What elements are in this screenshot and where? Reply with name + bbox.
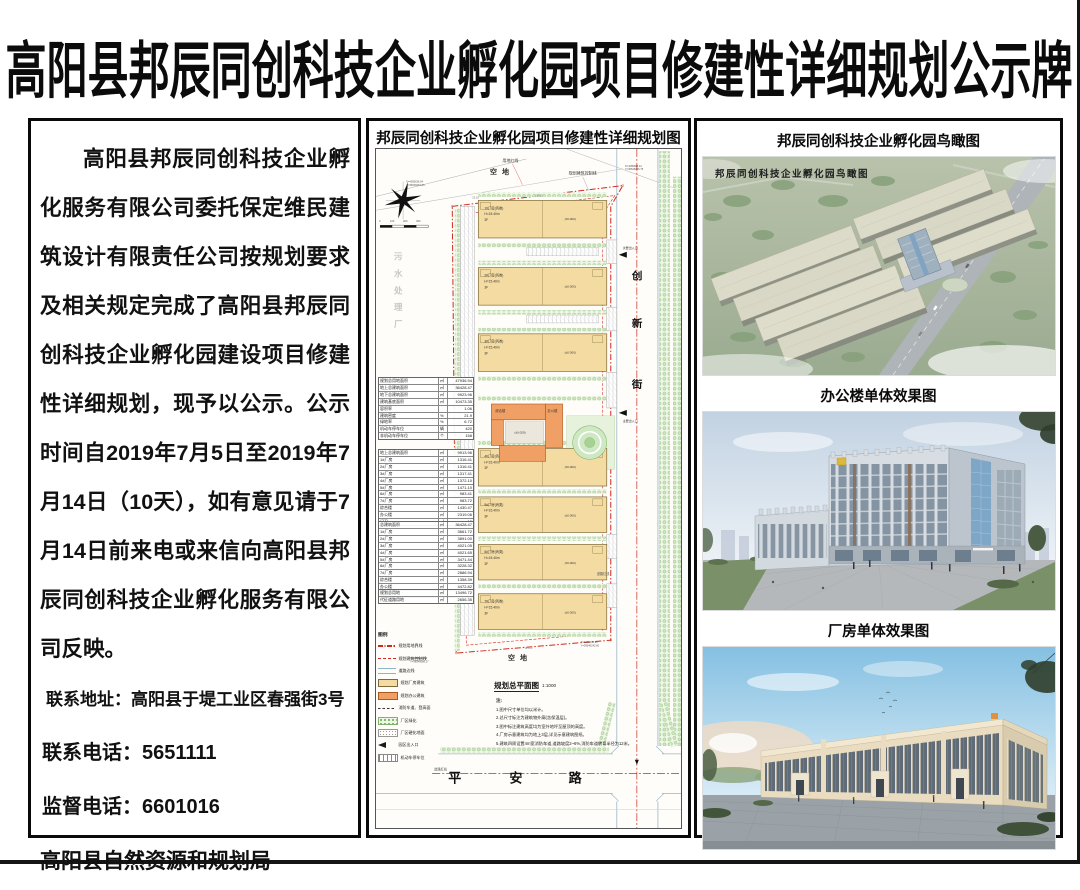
svg-text:6#厂房(丙类): 6#厂房(丙类) [484, 549, 503, 554]
legend-item: 厂区绿化 [378, 714, 438, 726]
svg-text:(±0.000): (±0.000) [514, 431, 525, 435]
svg-text:(±0.000): (±0.000) [565, 217, 576, 221]
aerial-render-title: 邦辰同创科技企业孵化园鸟瞰图 [697, 130, 1060, 151]
svg-text:(±0.000): (±0.000) [565, 611, 576, 615]
svg-text:次要出入口: 次要出入口 [623, 245, 638, 250]
map-legend: 图例 规划用地界线 规划建筑控制线 道路边线 规划厂房建筑 规划办公建筑 消防车… [378, 631, 438, 764]
svg-text:H=15.40m: H=15.40m [484, 346, 500, 350]
svg-text:Y=39546236.75: Y=39546236.75 [625, 167, 644, 171]
svg-text:H=15.40m: H=15.40m [484, 509, 500, 513]
notice-text-panel: 高阳县邦辰同创科技企业孵化服务有限公司委托保定维民建筑设计有限责任公司按规划要求… [28, 118, 361, 838]
svg-text:128.00: 128.00 [535, 193, 544, 197]
office-base [829, 546, 1025, 564]
legend-swatch-entrance-icon [378, 742, 386, 748]
svg-text:综合楼: 综合楼 [495, 408, 506, 413]
office-render-title: 办公楼单体效果图 [697, 385, 1060, 406]
svg-text:(±0.000): (±0.000) [565, 514, 576, 518]
factory-logo [991, 713, 998, 719]
svg-text:(±0.000): (±0.000) [565, 465, 576, 469]
plan-caption: 规划总平面图1:1000 [494, 675, 556, 693]
page-title-text: 高阳县邦辰同创科技企业孵化园项目修建性详细规划公示牌 [5, 22, 1072, 111]
legend-swatch-parking [378, 754, 398, 762]
svg-text:3F: 3F [484, 218, 488, 222]
svg-text:3F: 3F [484, 466, 488, 470]
notice-board-poster: 高阳县邦辰同创科技企业孵化园项目修建性详细规划公示牌 高阳县邦辰同创科技企业孵化… [0, 0, 1080, 864]
svg-text:处: 处 [393, 285, 403, 295]
office-render-image [702, 411, 1056, 611]
legend-swatch-office [378, 692, 398, 700]
svg-text:理: 理 [394, 302, 403, 312]
plan-notes: 注: 1.图中尺寸单位均以米计。 2.总尺寸标注为建筑物外廓(含保温层)。 3.… [496, 697, 632, 749]
sewage-plant-label: 污 水 处 理 厂 [393, 252, 403, 329]
svg-text:路: 路 [569, 771, 583, 786]
legend-item: 规划建筑控制线 [378, 652, 438, 664]
svg-text:(±0.000): (±0.000) [565, 351, 576, 355]
svg-text:Y=39546081.86: Y=39546081.86 [406, 183, 425, 187]
legend-item: 道路边线 [378, 665, 438, 677]
agency-name: 高阳县自然资源和规划局 [40, 834, 350, 890]
svg-text:H=15.40m: H=15.40m [484, 460, 500, 464]
svg-text:H=15.40m: H=15.40m [484, 279, 500, 283]
legend-swatch-control-line [378, 658, 396, 659]
svg-text:3F: 3F [484, 285, 488, 289]
indicator-table-4: 规划总用地㎡13496.72代征道路用地㎡2656.35 [378, 589, 474, 604]
svg-text:200: 200 [403, 219, 408, 223]
svg-text:5#厂房(丙类): 5#厂房(丙类) [484, 502, 503, 507]
svg-text:3F: 3F [484, 515, 488, 519]
svg-text:规划建筑控制线: 规划建筑控制线 [569, 171, 597, 176]
svg-text:水: 水 [394, 269, 403, 279]
factory-render-title: 厂房单体效果图 [697, 620, 1060, 641]
svg-text:7#厂房(丙类): 7#厂房(丙类) [484, 599, 503, 604]
svg-text:用地红线: 用地红线 [502, 158, 518, 163]
svg-text:300: 300 [416, 219, 421, 223]
supervise-phone: 监督电话：6601016 [40, 780, 350, 834]
svg-text:主要出入口: 主要出入口 [623, 418, 638, 423]
svg-text:街: 街 [631, 378, 643, 391]
svg-text:X=4285636.04: X=4285636.04 [406, 180, 424, 184]
svg-text:H=15.40m: H=15.40m [484, 556, 500, 560]
legend-swatch-fire-lane [378, 708, 396, 709]
scale-bar: 0 100 200 300 [379, 219, 428, 228]
legend-item: 园区出入口 [378, 739, 438, 751]
site-plan-map: 1#厂房(丙类) H=15.40m 3F (±0.000) 2#厂房(丙类) H… [375, 148, 682, 829]
legend-swatch-factory [378, 679, 398, 687]
indicator-table-3: 总建筑面积㎡36428.471#厂房㎡3661.722#厂房㎡3891.003#… [378, 521, 474, 598]
renders-panel: 邦辰同创科技企业孵化园鸟瞰图 [694, 118, 1063, 838]
svg-text:安: 安 [509, 771, 522, 786]
svg-text:0: 0 [379, 219, 381, 223]
legend-item: 规划办公建筑 [378, 690, 438, 702]
legend-swatch-green [378, 717, 398, 725]
svg-text:H=15.40m: H=15.40m [484, 212, 500, 216]
contact-address: 联系地址：高阳县于堤工业区春强街3号 [40, 674, 350, 726]
secondary-entrance-arrow-icon [619, 252, 627, 258]
svg-text:平: 平 [448, 771, 461, 786]
svg-text:3F: 3F [484, 562, 488, 566]
legend-title: 图例 [378, 631, 438, 638]
circular-plaza [573, 426, 607, 460]
svg-text:Y=39546242.60: Y=39546242.60 [581, 644, 600, 648]
svg-text:X=4285698.12: X=4285698.12 [625, 164, 643, 168]
indicator-table-1: 规划总用地面积㎡47936.94地上总建筑面积㎡36428.47地下总建筑面积㎡… [378, 377, 474, 440]
legend-item: 机动车停车位 [378, 752, 438, 764]
svg-text:污: 污 [394, 252, 403, 262]
site-plan-panel: 邦辰同创科技企业孵化园项目修建性详细规划图 [366, 118, 691, 838]
svg-text:X=4285246.90: X=4285246.90 [581, 640, 599, 644]
svg-text:道路红线: 道路红线 [434, 767, 448, 772]
svg-text:3F: 3F [484, 612, 488, 616]
aerial-render-image: 邦辰同创科技企业孵化园鸟瞰图 [702, 156, 1056, 376]
svg-text:3#厂房(丙类): 3#厂房(丙类) [484, 339, 503, 344]
svg-text:3F: 3F [484, 352, 488, 356]
svg-text:道路红线: 道路红线 [597, 571, 611, 576]
svg-text:办公楼: 办公楼 [548, 408, 559, 413]
legend-swatch-road-edge [378, 668, 396, 673]
legend-swatch-boundary [378, 645, 396, 647]
plan-title: 邦辰同创科技企业孵化园项目修建性详细规划图 [369, 127, 688, 148]
legend-item: 规划用地界线 [378, 640, 438, 652]
svg-text:2#厂房(丙类): 2#厂房(丙类) [484, 273, 503, 278]
svg-text:厂: 厂 [394, 319, 403, 329]
svg-text:1#厂房(丙类): 1#厂房(丙类) [484, 205, 503, 210]
svg-text:(±0.000): (±0.000) [565, 284, 576, 288]
aerial-overlay-caption: 邦辰同创科技企业孵化园鸟瞰图 [715, 168, 869, 180]
svg-text:100: 100 [390, 219, 395, 223]
svg-text:25.20: 25.20 [472, 195, 479, 199]
notice-paragraph: 高阳县邦辰同创科技企业孵化服务有限公司委托保定维民建筑设计有限责任公司按规划要求… [40, 135, 350, 674]
main-entrance-arrow-icon [619, 410, 627, 416]
vacant-land-label-bottom: 空地 [508, 653, 532, 663]
legend-item: 厂区硬化地面 [378, 727, 438, 739]
aerial-plaza [942, 278, 968, 292]
svg-text:123.23: 123.23 [524, 646, 533, 650]
factory-render-image [702, 646, 1056, 850]
office-roof-sign [837, 458, 846, 465]
contact-phone: 联系电话：5651111 [40, 726, 350, 780]
legend-swatch-paved [378, 729, 398, 737]
north-compass-icon [384, 181, 422, 219]
road-south-name: 平 安 路 [448, 771, 582, 786]
svg-text:H=15.40m: H=15.40m [484, 606, 500, 610]
svg-text:(±0.000): (±0.000) [565, 561, 576, 565]
legend-item: 消防车道、登高面 [378, 702, 438, 714]
svg-text:创: 创 [631, 270, 643, 283]
vacant-land-label-top: 空地 [490, 167, 514, 177]
indicator-table-2: 地上总建筑面积㎡9913.961#厂房㎡1316.412#厂房㎡1316.413… [378, 449, 474, 526]
legend-item: 规划厂房建筑 [378, 677, 438, 689]
svg-text:新: 新 [632, 317, 643, 330]
page-title: 高阳县邦辰同创科技企业孵化园项目修建性详细规划公示牌 [0, 20, 1077, 112]
